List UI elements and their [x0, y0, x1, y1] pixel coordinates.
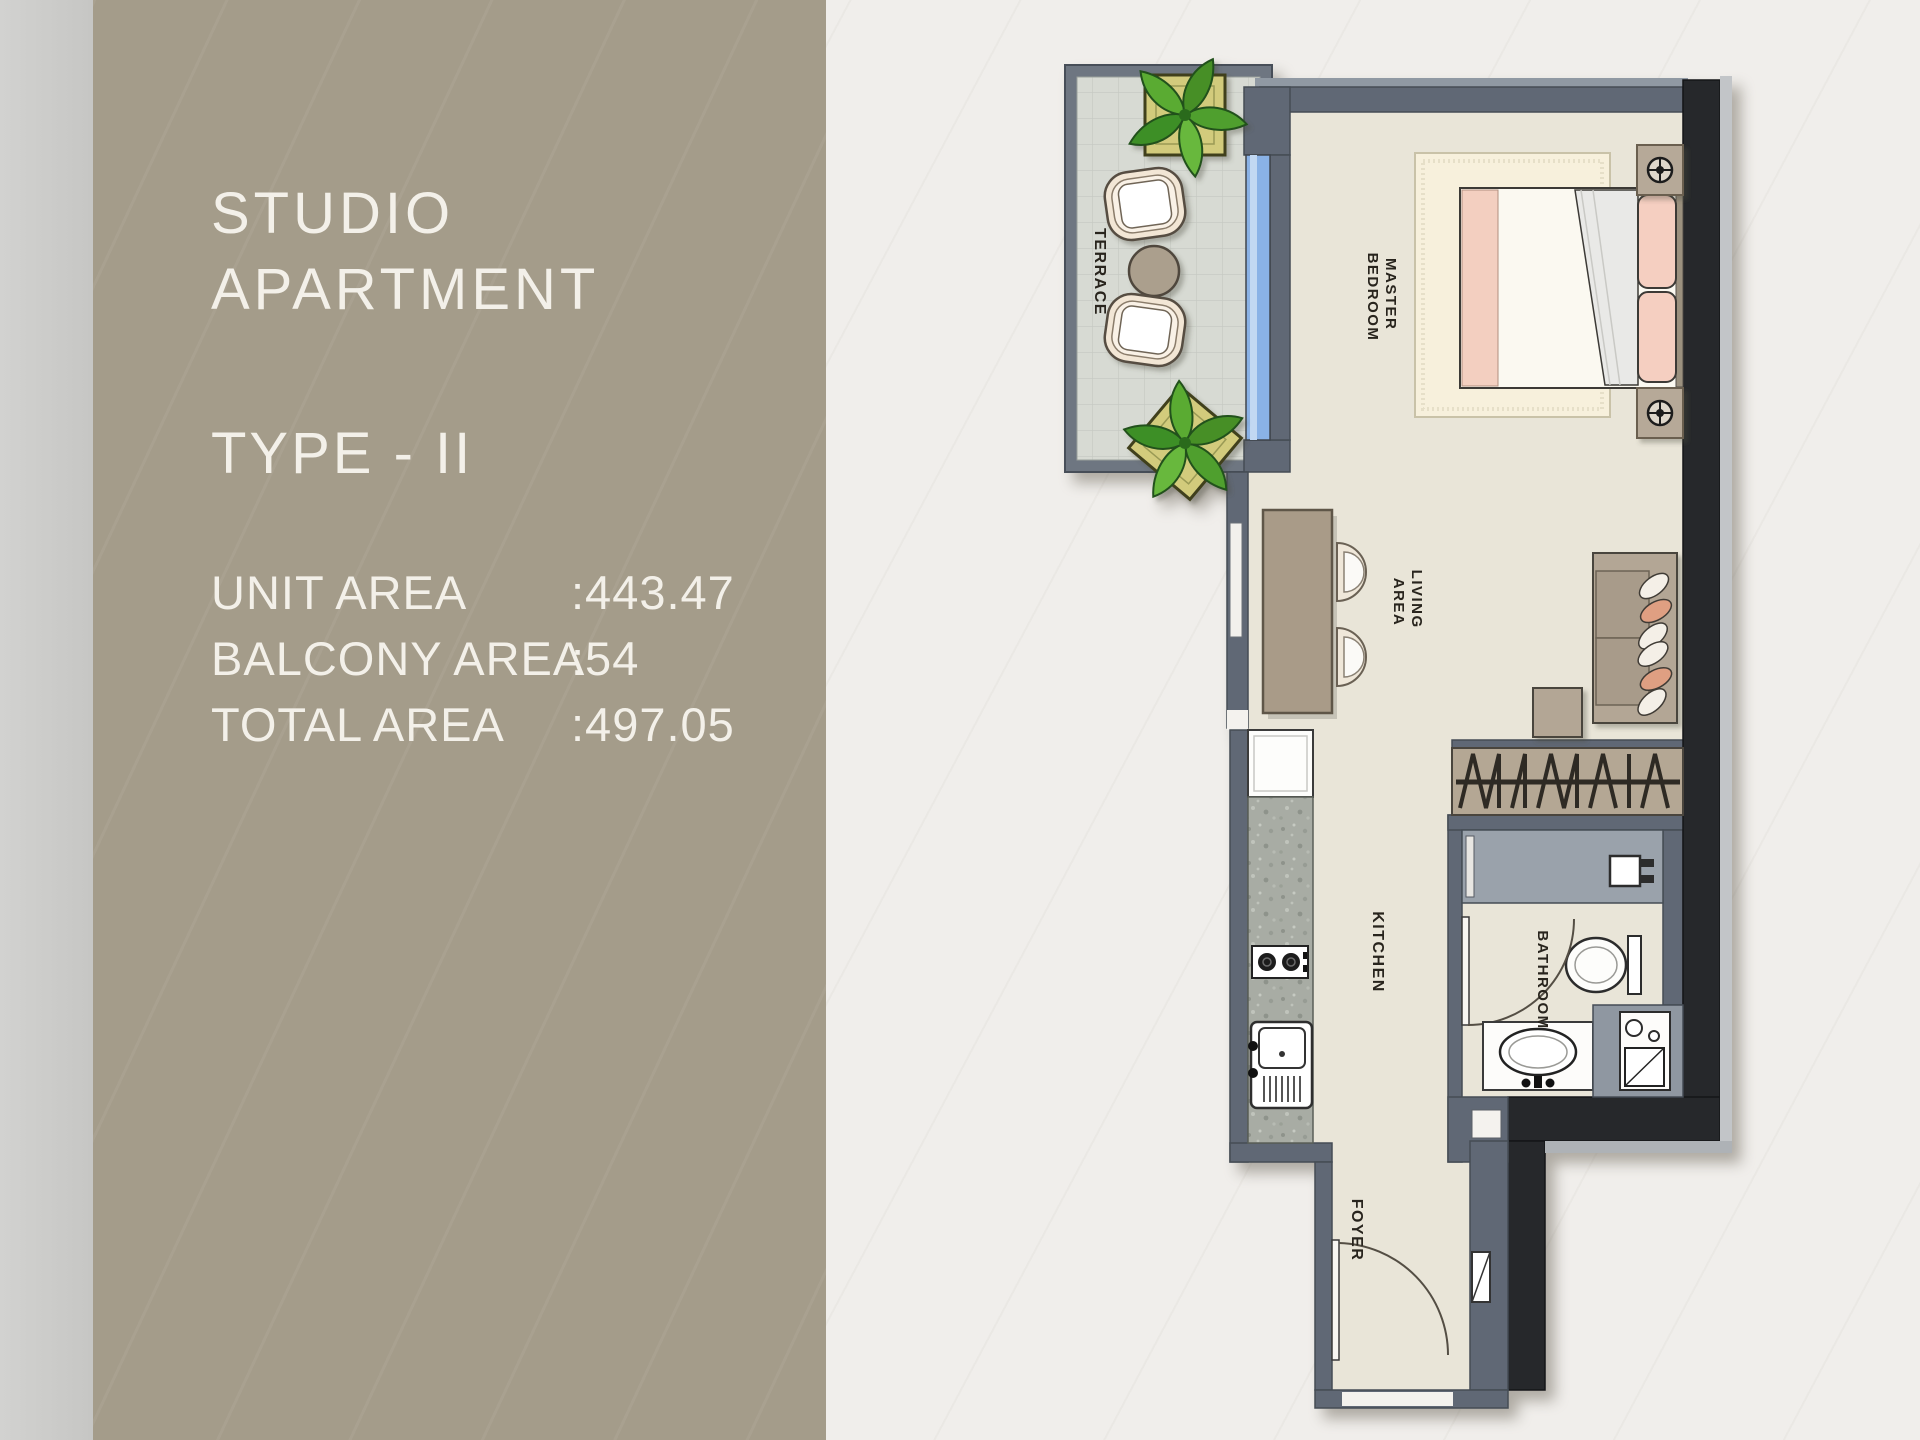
- kitchen-tap-2: [1248, 1068, 1258, 1078]
- total-area-label: TOTAL AREA: [211, 698, 505, 751]
- kitchen-bottom-wall: [1230, 1143, 1332, 1162]
- balcony-area-row: BALCONY AREA :54: [211, 626, 871, 692]
- terrace-chair-1: [1102, 165, 1189, 243]
- master-bedroom-label: MASTER BEDROOM: [1364, 253, 1399, 342]
- toilet-tank: [1628, 936, 1641, 994]
- burner-2: [1282, 953, 1300, 971]
- balcony-area-value: :54: [571, 626, 639, 692]
- wardrobe-top-wall: [1452, 740, 1685, 748]
- page: STUDIO APARTMENT TYPE - II UNIT AREA :44…: [0, 0, 1920, 1440]
- wardrobe: [1452, 748, 1683, 815]
- lamp-top: [1648, 158, 1672, 182]
- terrace-chair-2: [1102, 291, 1189, 369]
- entrance-door: [1332, 1240, 1339, 1360]
- sink-drainboard: [1264, 1076, 1300, 1102]
- vanity-faucet: [1534, 1076, 1542, 1088]
- window-wall-lower: [1244, 440, 1290, 472]
- window-wall-inner: [1270, 155, 1290, 440]
- wall-opening: [1227, 710, 1248, 730]
- stove-knob-2: [1303, 965, 1307, 972]
- terrace-table: [1129, 246, 1179, 296]
- floor-plan: TERRACE MASTER BEDROOM LIVING AREA KITCH…: [1040, 40, 1800, 1420]
- stove-knob-1: [1303, 952, 1307, 959]
- sink-drain: [1279, 1051, 1285, 1057]
- living-area-label: LIVING AREA: [1390, 570, 1425, 635]
- foyer-label: FOYER: [1348, 1199, 1365, 1262]
- left-edge-strip: [0, 0, 93, 1440]
- window-glass-highlight: [1250, 155, 1257, 440]
- balcony-area-label: BALCONY AREA: [211, 632, 585, 685]
- shower-top-wall: [1448, 815, 1685, 830]
- bedroom-top-wall: [1260, 87, 1683, 112]
- burner-1: [1258, 953, 1276, 971]
- vanity-tap-2: [1546, 1079, 1555, 1088]
- shower-bracket-1: [1640, 859, 1654, 867]
- bathroom-label: BATHROOM: [1534, 930, 1551, 1029]
- bed-runner: [1462, 190, 1498, 386]
- sofa-seat-1: [1596, 571, 1649, 638]
- kitchen-sink-basin: [1259, 1028, 1305, 1068]
- bedroom-window: [1246, 155, 1270, 440]
- shower-rail: [1466, 836, 1474, 897]
- shower-mixer: [1610, 856, 1640, 886]
- bathroom-right-wall: [1663, 830, 1683, 1005]
- bed-pillow-2: [1638, 292, 1676, 382]
- side-table: [1533, 688, 1582, 737]
- lamp-bottom: [1648, 401, 1672, 425]
- shower-bracket-2: [1640, 875, 1654, 883]
- top-wall-rim: [1255, 78, 1688, 87]
- title-line2: APARTMENT: [211, 252, 599, 328]
- unit-area-value: :443.47: [571, 560, 735, 626]
- page-title: STUDIO APARTMENT: [211, 176, 599, 328]
- kitchen: [1248, 730, 1313, 1143]
- kitchen-left-wall: [1230, 730, 1248, 1162]
- laundry-sink: [1626, 1020, 1642, 1036]
- unit-area-row: UNIT AREA :443.47: [211, 560, 871, 626]
- info-panel: STUDIO APARTMENT TYPE - II UNIT AREA :44…: [93, 0, 826, 1440]
- bed-pillow-1: [1638, 195, 1676, 288]
- laundry-tap: [1649, 1031, 1659, 1041]
- foyer-left-wall: [1315, 1162, 1332, 1390]
- total-area-value: :497.05: [571, 692, 735, 758]
- wall-niche: [1472, 1110, 1501, 1138]
- total-area-row: TOTAL AREA :497.05: [211, 692, 871, 758]
- bed-headboard: [1676, 190, 1683, 387]
- unit-type-label: TYPE - II: [211, 420, 473, 487]
- area-table: UNIT AREA :443.47 BALCONY AREA :54 TOTAL…: [211, 560, 871, 758]
- fridge: [1248, 730, 1313, 797]
- entrance-opening: [1342, 1392, 1453, 1406]
- living-wall-window: [1230, 523, 1242, 637]
- dining-table: [1263, 510, 1332, 713]
- unit-area-label: UNIT AREA: [211, 566, 467, 619]
- bathroom-door: [1462, 917, 1469, 1025]
- right-black-wall: [1683, 80, 1720, 1100]
- kitchen-tap-1: [1248, 1041, 1258, 1051]
- outer-rim-band: [1545, 1141, 1732, 1153]
- black-wall-band: [1508, 1097, 1720, 1141]
- terrace-label: TERRACE: [1091, 228, 1108, 316]
- foyer-black-wall: [1508, 1141, 1545, 1390]
- outer-rim-right: [1720, 76, 1732, 1148]
- kitchen-label: KITCHEN: [1369, 911, 1386, 993]
- title-line1: STUDIO: [211, 176, 599, 252]
- master-bedroom: [1415, 145, 1683, 438]
- vanity-tap-1: [1522, 1079, 1531, 1088]
- window-wall-upper: [1244, 87, 1290, 155]
